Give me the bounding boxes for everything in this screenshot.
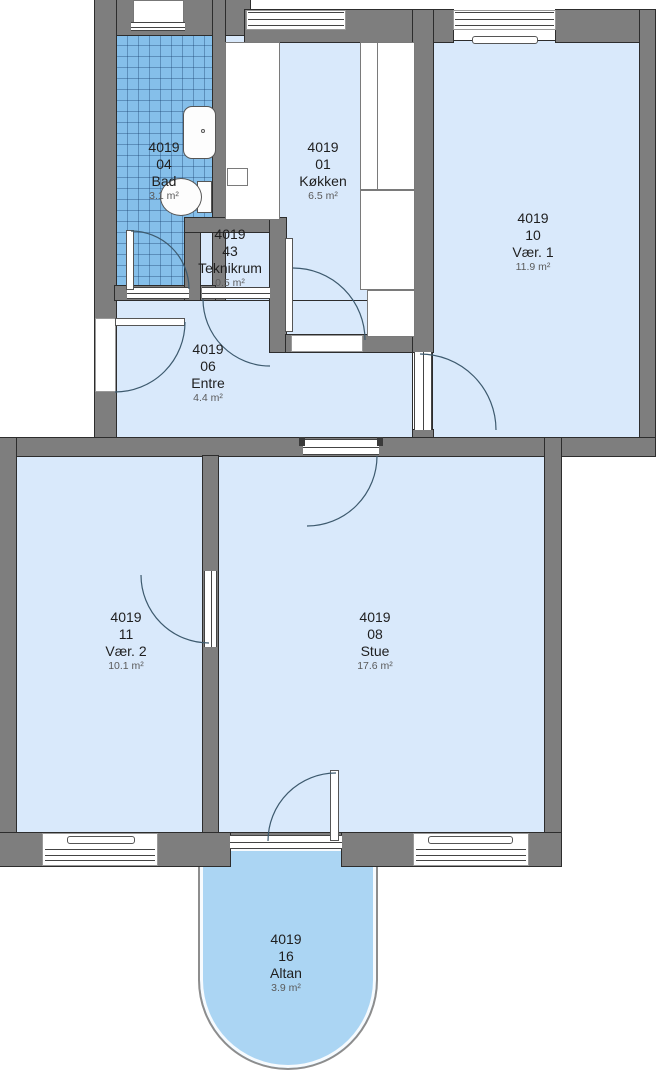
room-area: 10.1 m² — [76, 660, 176, 673]
room-name: Vær. 1 — [483, 244, 583, 261]
room-area: 17.6 m² — [325, 660, 425, 673]
room-unit: 4019 — [175, 226, 285, 243]
label-vaer2: 4019 11 Vær. 2 10.1 m² — [76, 609, 176, 673]
room-unit: 4019 — [325, 609, 425, 626]
stue-door-post-right — [377, 437, 383, 446]
room-name: Altan — [236, 965, 336, 982]
room-name: Entre — [158, 375, 258, 392]
label-kokken: 4019 01 Køkken 6.5 m² — [273, 139, 373, 203]
room-number: 43 — [175, 243, 285, 260]
wall-outer-right — [640, 10, 655, 438]
kitchen-counter-right — [360, 190, 415, 290]
room-area: 3.9 m² — [236, 982, 336, 995]
room-number: 01 — [273, 156, 373, 173]
bad-door-leaf — [126, 230, 134, 290]
label-teknikrum: 4019 43 Teknikrum 0.5 m² — [175, 226, 285, 290]
balcony-pier-right — [342, 833, 415, 866]
bad-window — [131, 22, 185, 31]
room-area: 11.9 m² — [483, 261, 583, 274]
room-number: 16 — [236, 948, 336, 965]
floor-plan: 4019 04 Bad 3.1 m² 4019 01 Køkken 6.5 m²… — [0, 0, 661, 1080]
kokken-door-opening — [291, 335, 363, 352]
stue-window — [416, 849, 526, 861]
kokken-door-leaf — [285, 238, 293, 332]
stue-radiator — [428, 836, 513, 844]
room-name: Stue — [325, 643, 425, 660]
room-area: 3.1 m² — [114, 190, 214, 203]
washbasin-drain — [201, 129, 205, 133]
vaer1-window — [455, 12, 554, 26]
stue-door-post-left — [299, 437, 305, 446]
label-entre: 4019 06 Entre 4.4 m² — [158, 341, 258, 405]
kokken-window — [248, 12, 344, 26]
kitchen-cabinet-divider — [377, 42, 378, 190]
room-number: 08 — [325, 626, 425, 643]
kitchen-counter-left — [225, 42, 280, 220]
wall-vaer2-stue — [203, 456, 218, 850]
vaer1-radiator — [472, 36, 538, 44]
vaer2-window — [45, 849, 155, 861]
label-altan: 4019 16 Altan 3.9 m² — [236, 931, 336, 995]
kitchen-counter-right-low — [367, 290, 415, 337]
room-name: Køkken — [273, 173, 373, 190]
room-name: Bad — [114, 173, 214, 190]
vaer2-radiator — [67, 836, 135, 844]
room-unit: 4019 — [273, 139, 373, 156]
room-unit: 4019 — [158, 341, 258, 358]
vaer2-door-frame — [204, 571, 217, 647]
balcony-pier-left — [155, 833, 230, 866]
stue-door-frame — [303, 439, 379, 455]
room-unit: 4019 — [76, 609, 176, 626]
room-area: 0.5 m² — [175, 277, 285, 290]
wall-vaer1-door-post — [413, 430, 433, 438]
room-number: 11 — [76, 626, 176, 643]
label-stue: 4019 08 Stue 17.6 m² — [325, 609, 425, 673]
balcony-door-sill — [230, 835, 342, 849]
room-name: Teknikrum — [175, 260, 285, 277]
entrance-door-opening — [95, 318, 116, 392]
room-number: 04 — [114, 156, 214, 173]
room-area: 4.4 m² — [158, 392, 258, 405]
room-unit: 4019 — [114, 139, 214, 156]
wall-outer-left-lower — [0, 438, 16, 866]
room-number: 10 — [483, 227, 583, 244]
wall-kokken-vaer1 — [413, 10, 433, 352]
label-bad: 4019 04 Bad 3.1 m² — [114, 139, 214, 203]
balcony-door-leaf — [330, 770, 339, 841]
room-name: Vær. 2 — [76, 643, 176, 660]
room-number: 06 — [158, 358, 258, 375]
entrance-door-leaf — [115, 318, 185, 326]
room-area: 6.5 m² — [273, 190, 373, 203]
room-unit: 4019 — [236, 931, 336, 948]
vaer1-door-frame — [414, 352, 432, 430]
wall-outer-right-lower — [545, 438, 561, 866]
label-vaer1: 4019 10 Vær. 1 11.9 m² — [483, 210, 583, 274]
room-unit: 4019 — [483, 210, 583, 227]
kitchen-sink — [227, 168, 248, 186]
